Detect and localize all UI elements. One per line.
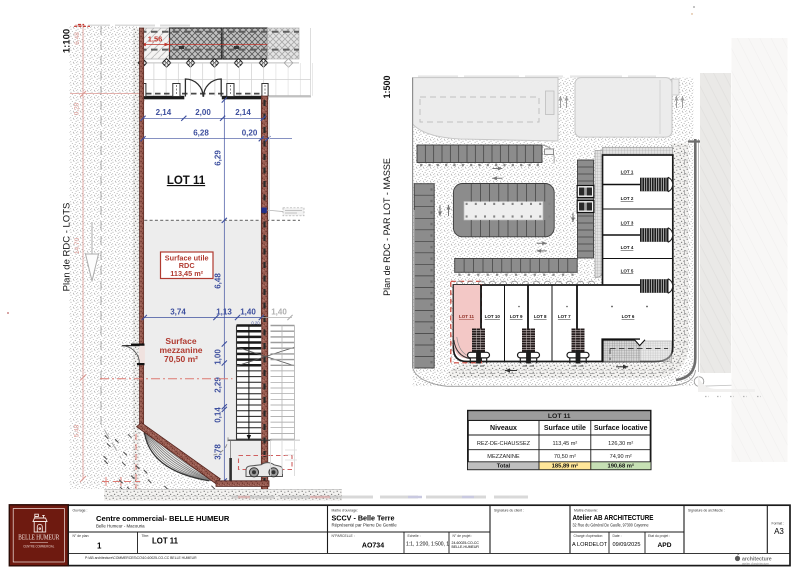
svg-text:SCCV - Belle Terre: SCCV - Belle Terre bbox=[332, 514, 395, 523]
svg-text:N°PARCELLE :: N°PARCELLE : bbox=[332, 534, 355, 538]
svg-text:2,00: 2,00 bbox=[195, 108, 211, 117]
svg-text:3,74: 3,74 bbox=[170, 307, 186, 316]
svg-text:LOT 9: LOT 9 bbox=[510, 314, 523, 319]
svg-text:BELLE HUMEUR: BELLE HUMEUR bbox=[18, 534, 59, 542]
svg-text:6,28: 6,28 bbox=[193, 129, 209, 138]
svg-text:2,14: 2,14 bbox=[235, 108, 251, 117]
svg-text:A LORDELOT: A LORDELOT bbox=[572, 542, 608, 548]
svg-text:70,50 m²: 70,50 m² bbox=[554, 454, 576, 460]
svg-text:09/09/2025: 09/09/2025 bbox=[613, 542, 641, 548]
svg-text:32 Rue du Général De Gaulle, 9: 32 Rue du Général De Gaulle, 97300 Cayen… bbox=[573, 522, 650, 527]
svg-text:CENTRE COMMERCIAL: CENTRE COMMERCIAL bbox=[23, 545, 54, 549]
svg-text:LOT 11: LOT 11 bbox=[548, 413, 571, 420]
svg-text:Surface locative: Surface locative bbox=[594, 425, 648, 432]
svg-text:185,89 m²: 185,89 m² bbox=[552, 463, 578, 470]
svg-text:LOT 10: LOT 10 bbox=[485, 314, 501, 319]
svg-text:190,68 m²: 190,68 m² bbox=[607, 463, 633, 470]
svg-text:14,70: 14,70 bbox=[74, 237, 81, 254]
svg-text:LOT 6: LOT 6 bbox=[622, 314, 635, 319]
svg-text:A3: A3 bbox=[774, 527, 784, 536]
svg-text:Réprésenté par Pierre De Genti: Réprésenté par Pierre De Gentile bbox=[332, 523, 398, 528]
svg-text:LOT 4: LOT 4 bbox=[621, 245, 634, 250]
svg-text:LOT 11: LOT 11 bbox=[167, 175, 206, 187]
svg-text:Chargé d'opération:: Chargé d'opération: bbox=[574, 534, 604, 538]
svg-text:0,14: 0,14 bbox=[214, 407, 223, 423]
svg-text:LOT 2: LOT 2 bbox=[621, 196, 634, 201]
svg-text:1:500: 1:500 bbox=[382, 75, 392, 98]
svg-text:LOT 11: LOT 11 bbox=[459, 314, 475, 319]
svg-text:Belle Humeur - Macouria: Belle Humeur - Macouria bbox=[96, 523, 145, 528]
svg-text:1:1, 1:200, 1:500, 1: 1:1, 1:200, 1:500, 1 bbox=[406, 542, 449, 548]
svg-text:Total: Total bbox=[497, 464, 511, 470]
svg-text:Echelle :: Echelle : bbox=[408, 534, 421, 538]
svg-text:Signature du client :: Signature du client : bbox=[494, 509, 524, 513]
svg-text:113,45 m²: 113,45 m² bbox=[553, 441, 578, 447]
svg-text:LOT 1: LOT 1 bbox=[621, 170, 634, 175]
svg-text:MEZZANINE: MEZZANINE bbox=[487, 454, 520, 460]
svg-text:N° de plan:: N° de plan: bbox=[73, 534, 90, 538]
svg-text:AO734: AO734 bbox=[362, 543, 384, 550]
svg-text:REZ-DE-CHAUSSEZ: REZ-DE-CHAUSSEZ bbox=[477, 441, 531, 447]
svg-text:1,40: 1,40 bbox=[271, 307, 287, 316]
svg-text:Centre commercial- BELLE HUMEU: Centre commercial- BELLE HUMEUR bbox=[96, 514, 230, 523]
svg-text:LOT 7: LOT 7 bbox=[558, 314, 571, 319]
svg-text:APD: APD bbox=[658, 542, 672, 549]
svg-text:Etat du projet :: Etat du projet : bbox=[648, 534, 670, 538]
svg-text:113,45 m²: 113,45 m² bbox=[170, 269, 203, 278]
svg-text:0,20: 0,20 bbox=[74, 102, 81, 115]
svg-text:1,40: 1,40 bbox=[240, 307, 256, 316]
svg-text:Ouvrage :: Ouvrage : bbox=[73, 509, 88, 513]
svg-text:Format :: Format : bbox=[772, 522, 785, 526]
svg-text:Niveaux: Niveaux bbox=[490, 425, 517, 432]
svg-text:5,48: 5,48 bbox=[74, 424, 81, 437]
svg-text:1,13: 1,13 bbox=[216, 307, 232, 316]
svg-text:Date :: Date : bbox=[613, 534, 622, 538]
svg-text:6,29: 6,29 bbox=[214, 150, 223, 166]
svg-text:atelier d'architecture: atelier d'architecture bbox=[742, 561, 769, 565]
svg-text:Maître d'œuvre:: Maître d'œuvre: bbox=[574, 509, 598, 513]
svg-text:Plan de RDC - PAR LOT - MASSE: Plan de RDC - PAR LOT - MASSE bbox=[382, 158, 392, 296]
svg-text:P:\AB architecture\COMMERCES\C: P:\AB architecture\COMMERCES\CO\10-60025… bbox=[85, 556, 197, 560]
svg-text:2,14: 2,14 bbox=[156, 108, 172, 117]
svg-text:126,30 m²: 126,30 m² bbox=[608, 441, 633, 447]
svg-text:LOT 11: LOT 11 bbox=[152, 537, 179, 546]
svg-text:Titre:: Titre: bbox=[142, 534, 150, 538]
svg-text:74,90 m²: 74,90 m² bbox=[610, 454, 632, 460]
svg-text:70,50 m²: 70,50 m² bbox=[164, 354, 198, 364]
svg-text:Surface utile: Surface utile bbox=[544, 425, 586, 432]
svg-text:Signature de architecte :: Signature de architecte : bbox=[688, 509, 725, 513]
svg-text:6,48: 6,48 bbox=[74, 32, 81, 45]
svg-text:LOT 8: LOT 8 bbox=[534, 314, 547, 319]
svg-text:N° de projet :: N° de projet : bbox=[453, 534, 473, 538]
svg-text:1: 1 bbox=[97, 542, 102, 551]
svg-text:BELLE-HUMEUR: BELLE-HUMEUR bbox=[452, 545, 480, 549]
svg-text:0,20: 0,20 bbox=[242, 129, 258, 138]
svg-text:LOT 3: LOT 3 bbox=[621, 221, 634, 226]
svg-text:Atelier AB ARCHITECTURE: Atelier AB ARCHITECTURE bbox=[573, 515, 654, 522]
svg-text:LOT 5: LOT 5 bbox=[621, 269, 634, 274]
svg-text:1,00: 1,00 bbox=[214, 349, 223, 365]
svg-text:Maître d'ouvrage:: Maître d'ouvrage: bbox=[332, 509, 358, 513]
svg-text:1,56: 1,56 bbox=[148, 35, 163, 44]
svg-text:6,48: 6,48 bbox=[214, 273, 223, 289]
